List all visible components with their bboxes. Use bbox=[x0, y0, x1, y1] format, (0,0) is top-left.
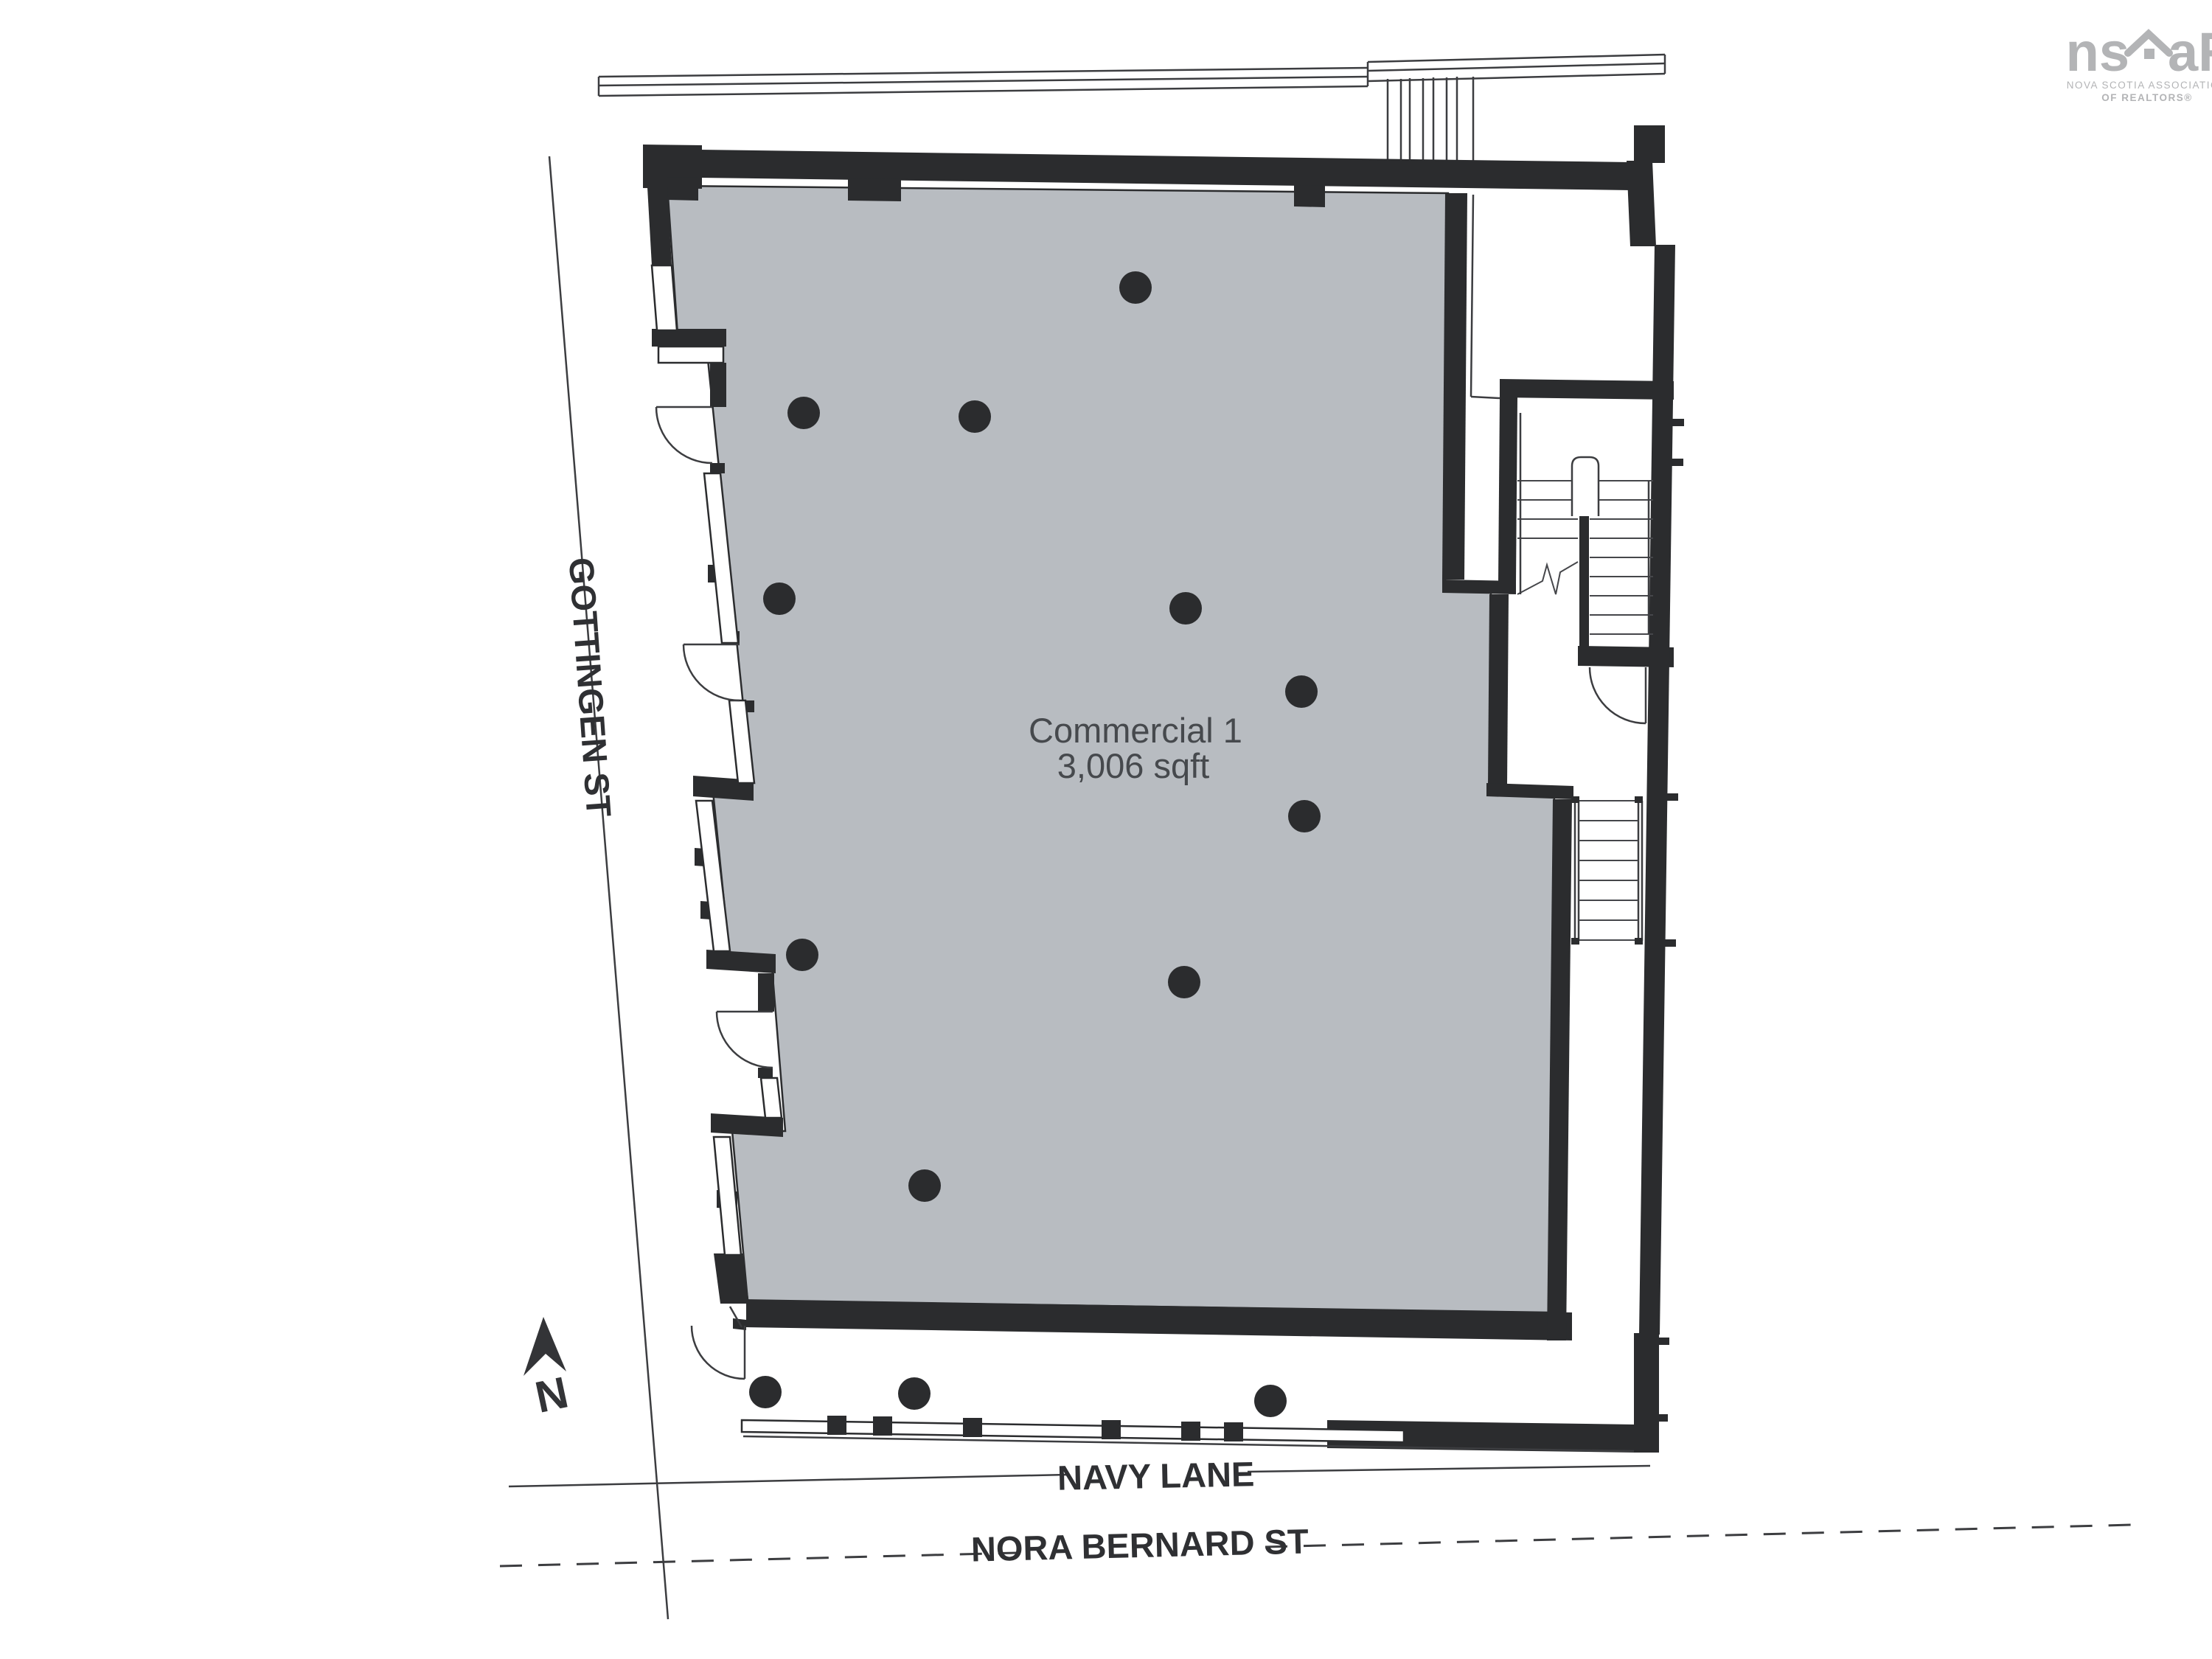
wall-tick bbox=[1659, 1338, 1669, 1345]
wall-tick bbox=[1658, 1414, 1668, 1422]
north-arrow: N bbox=[524, 1317, 572, 1422]
northeast-block bbox=[1634, 125, 1665, 163]
northeast-wall bbox=[1627, 161, 1656, 246]
pilaster-stub bbox=[848, 178, 901, 201]
stairwell-door bbox=[1590, 667, 1646, 723]
logo-brand-right: aR bbox=[2168, 21, 2212, 83]
rail-cap bbox=[1571, 796, 1579, 803]
navy-lane-line-right bbox=[1248, 1466, 1650, 1472]
nsar-logo: ns aR NOVA SCOTIA ASSOCIATION OF REALTOR… bbox=[2066, 21, 2212, 103]
wall-tick bbox=[1672, 459, 1683, 466]
stairwell-top-wall bbox=[1500, 379, 1674, 400]
column-dot bbox=[786, 939, 818, 971]
exterior-steps-hatch bbox=[1388, 77, 1473, 162]
rail-cap bbox=[1571, 938, 1579, 945]
column-dot bbox=[1168, 966, 1200, 998]
stair-newel bbox=[1572, 457, 1599, 516]
column-dot bbox=[749, 1376, 782, 1408]
wall-tick bbox=[1672, 419, 1684, 426]
walkway-columns bbox=[749, 1376, 1287, 1417]
west-wall-jog bbox=[652, 329, 726, 347]
column-dot bbox=[1119, 271, 1152, 304]
west-door-frame bbox=[710, 363, 726, 407]
logo-tagline-2: OF REALTORS® bbox=[2101, 92, 2192, 103]
logo-brand-left: ns bbox=[2066, 21, 2129, 83]
wall-tick bbox=[1664, 939, 1676, 947]
window-step bbox=[658, 347, 723, 363]
west-door-sill bbox=[710, 463, 725, 473]
north-sidewalk-lines bbox=[599, 55, 1665, 96]
column-dot bbox=[1169, 592, 1202, 625]
unit-area-label: 3,006 sqft bbox=[1057, 746, 1209, 785]
north-arrow-label: N bbox=[531, 1367, 572, 1422]
house-icon bbox=[2128, 34, 2169, 59]
nora-bernard-line-left bbox=[500, 1553, 1018, 1566]
pilaster-stub bbox=[667, 177, 698, 201]
floor-plan-svg: Commercial 1 3,006 sqft GOTTINGEN ST NAV… bbox=[0, 0, 2212, 1659]
column-dot bbox=[959, 400, 991, 433]
column-dot bbox=[787, 397, 820, 429]
southeast-block bbox=[1634, 1333, 1659, 1453]
window bbox=[652, 265, 677, 330]
window bbox=[761, 1078, 782, 1118]
column-dot bbox=[1285, 675, 1318, 708]
street-label-nora-bernard: NORA BERNARD ST bbox=[970, 1521, 1309, 1568]
wall-tick bbox=[1666, 793, 1678, 801]
street-label-navy-lane: NAVY LANE bbox=[1057, 1454, 1255, 1498]
entry-door bbox=[684, 644, 740, 700]
stairwell-left-wall bbox=[1498, 397, 1517, 582]
west-door-sill bbox=[758, 1068, 773, 1078]
floor-plan-page: Commercial 1 3,006 sqft GOTTINGEN ST NAV… bbox=[0, 0, 2212, 1659]
building: Commercial 1 3,006 sqft bbox=[643, 125, 1684, 1453]
navy-lane-line-left bbox=[509, 1475, 1068, 1486]
east-exterior-wall bbox=[1639, 245, 1675, 1335]
street-label-gottingen: GOTTINGEN ST bbox=[562, 556, 619, 818]
entry-door bbox=[717, 1012, 773, 1068]
column-dot bbox=[908, 1169, 941, 1202]
east-unit-wall-middle bbox=[1488, 594, 1509, 786]
pilaster-stub bbox=[1294, 185, 1325, 207]
nora-bernard-line-right bbox=[1265, 1525, 2132, 1547]
column-dot bbox=[1254, 1385, 1287, 1417]
unit-name-label: Commercial 1 bbox=[1029, 711, 1242, 750]
east-unit-wall-upper bbox=[1442, 193, 1467, 580]
column-dot bbox=[763, 582, 796, 615]
logo-tagline-1: NOVA SCOTIA ASSOCIATION bbox=[2067, 80, 2212, 91]
rail-cap bbox=[1635, 938, 1643, 945]
lower-stair bbox=[1571, 796, 1643, 945]
north-arrow-icon bbox=[524, 1317, 566, 1376]
stair-break-line bbox=[1517, 562, 1578, 594]
walkway-door bbox=[692, 1326, 745, 1379]
west-door-frame bbox=[758, 973, 774, 1012]
rail-cap bbox=[1635, 796, 1643, 803]
column-dot bbox=[898, 1377, 931, 1410]
entry-door bbox=[656, 407, 712, 463]
column-dot bbox=[1288, 800, 1321, 832]
north-wall bbox=[644, 149, 1631, 190]
